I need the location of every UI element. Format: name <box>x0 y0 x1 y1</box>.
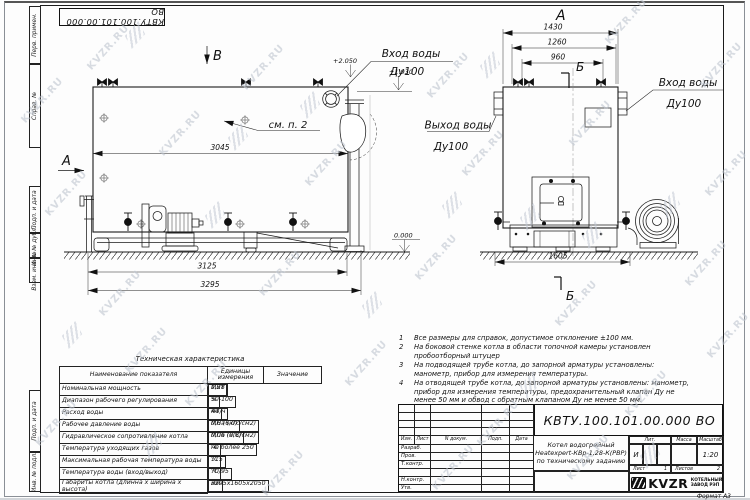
ground-hatch-side <box>64 253 410 260</box>
outlet-label-line2: Ду100 <box>433 141 469 153</box>
note-number: 4 <box>399 379 414 404</box>
inlet-port <box>323 91 340 108</box>
kvzr-logo-icon <box>631 477 646 489</box>
note-text: На подводящей трубе котла, до запорной а… <box>414 361 693 378</box>
col-data: Дата <box>510 436 534 445</box>
table-row: Габариты котла (длинна х ширина х высота… <box>60 480 322 494</box>
side-view: В см. п. 2 3045 Вход воды Ду100 +2.050 +… <box>58 46 453 295</box>
col-docnum: N докум. <box>431 436 482 445</box>
drawing-sheet: Перв. примен. Справ. № Подп. и дата Инв.… <box>0 0 750 500</box>
note-text: Все размеры для справок, допустимое откл… <box>414 334 693 342</box>
row-name: Температура уходящих газов <box>60 444 208 456</box>
elevation-1930: +1.930 <box>389 68 413 76</box>
row-tkontr: Т.контр. <box>399 461 431 469</box>
col-list: Лист <box>415 436 431 445</box>
row-utv: Утв. <box>399 485 431 493</box>
blower-fan <box>636 200 679 249</box>
company-cell: KVZR КОТЕЛЬНЫЙ ЗАВОД РЭП <box>629 473 724 493</box>
row-value: 115 <box>208 456 226 468</box>
inlet-label-front-line1: Вход воды <box>659 77 718 89</box>
table-row: Гидравлическое сопротивление котлаМПа (к… <box>60 432 322 444</box>
dim-1260: 1260 <box>547 38 566 47</box>
format-label: Формат А3 <box>655 493 731 500</box>
title-block-right: Лит. Масса Масштаб И 1:20 Лист 1 Листов … <box>629 436 724 493</box>
see-note-label: см. п. 2 <box>269 120 308 131</box>
product-title: Котел водогрейный Heatexpert-КВр-1,28-К(… <box>534 436 629 471</box>
row-value: 1,28 <box>208 384 228 396</box>
lit-value: И <box>629 444 643 465</box>
dim-1430: 1430 <box>543 23 562 32</box>
lit-header: Лит. <box>629 436 671 444</box>
note-number: 1 <box>399 334 414 342</box>
revision-grid <box>399 405 534 436</box>
inlet-label-line1: Вход воды <box>382 48 441 60</box>
elevation-1930-mark <box>357 77 412 92</box>
company-name: КОТЕЛЬНЫЙ ЗАВОД РЭП <box>691 478 723 489</box>
furnace-door <box>532 177 589 227</box>
table-row: Температура уходящих газов°Сне более 250 <box>60 444 322 456</box>
row-empty <box>399 469 431 477</box>
right-drain-valve <box>622 212 630 230</box>
row-razrab: Разраб. <box>399 445 431 453</box>
row-name: Температура воды (вход/выход) <box>60 468 208 480</box>
kvzr-logo-text: KVZR <box>648 476 688 491</box>
elevation-zero-mark <box>392 240 420 252</box>
table-row: Температура воды (вход/выход)°С70/95 <box>60 468 322 480</box>
tech-header-value: Значение <box>264 367 322 384</box>
elevation-2050-mark <box>346 65 356 78</box>
elevation-zero: 0.000 <box>394 232 413 240</box>
row-value: 50-100 <box>208 396 236 408</box>
sheets-value: 2 <box>717 466 720 472</box>
flue-duct <box>340 100 377 252</box>
see-note-leader <box>224 121 258 131</box>
lit-cell-2 <box>643 444 657 465</box>
drain-valves <box>124 213 297 231</box>
note-number: 3 <box>399 361 414 378</box>
lit-cell-3 <box>657 444 671 465</box>
air-valves-top-front <box>514 79 606 87</box>
dim-1605: 1605 <box>548 252 567 261</box>
product-title-line3: по техническому заданию <box>537 457 626 465</box>
spare-cell <box>534 471 629 493</box>
note-item: 2На боковой стенке котла в области топоч… <box>399 343 693 360</box>
sheet-value: 1 <box>664 466 667 472</box>
note-text: На отводящей трубе котла, до запорной ар… <box>414 379 693 404</box>
notes: 1Все размеры для справок, допустимое отк… <box>399 334 693 406</box>
boiler-body-side <box>93 87 348 232</box>
row-name: Номинальная мощность <box>60 384 208 396</box>
col-izm: Изм. <box>399 436 415 445</box>
front-view: А 1430 1260 960 Б <box>425 8 723 303</box>
dim-960: 960 <box>551 53 566 62</box>
row-prov: Пров. <box>399 453 431 461</box>
elevation-2050: +2.050 <box>333 57 357 65</box>
tech-table-title: Техническая характеристика <box>59 355 321 366</box>
row-name: Рабочее давление воды <box>60 420 208 432</box>
inlet-label-front-line2: Ду100 <box>666 98 702 110</box>
signature-table: Изм. Лист N докум. Подп. Дата Разраб. Пр… <box>399 436 534 493</box>
tech-table-header-row: Наименование показателя Единицы измерени… <box>60 367 322 384</box>
sheet-cell: Лист 1 <box>629 465 671 473</box>
ground-hatch-front <box>480 253 698 260</box>
section-b-bottom-mark <box>554 277 561 290</box>
kvzr-logo: KVZR КОТЕЛЬНЫЙ ЗАВОД РЭП <box>630 474 723 492</box>
table-row: Рабочее давление водыМПа (кгс/см2)0,6 (6… <box>60 420 322 432</box>
section-b-top-label: Б <box>576 60 584 74</box>
row-value: 0,06 (0,6) <box>208 432 244 444</box>
section-b-top-mark <box>561 73 569 88</box>
scale-value: 1:20 <box>697 444 724 465</box>
row-value: 44 <box>208 408 222 420</box>
sheets-cell: Листов 2 <box>671 465 724 473</box>
view-b-label: В <box>213 49 222 64</box>
row-value: 70/95 <box>208 468 232 480</box>
document-number: КВТУ.100.101.00.000 ВО <box>534 405 724 436</box>
row-name: Габариты котла (длинна х ширина х высота… <box>60 480 208 494</box>
table-row: Максимальная рабочая температура воды°С1… <box>60 456 322 468</box>
outlet-flange <box>494 92 503 115</box>
inlet-flange <box>618 92 627 115</box>
air-valves-top <box>98 79 323 87</box>
dim-3125: 3125 <box>197 262 216 271</box>
row-name: Расход воды <box>60 408 208 420</box>
support-frame <box>94 232 347 252</box>
mass-header: Масса <box>671 436 697 444</box>
fan-pipe-elbow <box>628 228 637 245</box>
row-name: Гидравлическое сопротивление котла <box>60 432 208 444</box>
section-a-label: А <box>61 154 71 169</box>
dim-3295: 3295 <box>200 280 219 289</box>
outlet-label-line1: Выход воды <box>425 120 492 132</box>
table-row: Номинальная мощностьМВт1,28 <box>60 384 322 396</box>
company-name-line2: ЗАВОД РЭП <box>691 483 720 488</box>
title-block: КВТУ.100.101.00.000 ВО Изм. Лист N докум… <box>398 404 723 492</box>
tech-table: Наименование показателя Единицы измерени… <box>59 366 322 494</box>
note-number: 2 <box>399 343 414 360</box>
product-title-line2: Heatexpert-КВр-1,28-К(РВР) <box>535 449 627 457</box>
dim-3045: 3045 <box>210 143 229 152</box>
burner-unit <box>142 204 203 251</box>
scale-header: Масштаб <box>697 436 724 444</box>
tech-header-name: Наименование показателя <box>60 367 208 384</box>
note-item: 3На подводящей трубе котла, до запорной … <box>399 361 693 378</box>
col-podp: Подп. <box>482 436 510 445</box>
note-text: На боковой стенке котла в области топочн… <box>414 343 693 360</box>
row-value: не более 250 <box>208 444 257 456</box>
row-value: 3295х1605х2050 <box>208 480 269 492</box>
note-item: 4На отводящей трубе котла, до запорной а… <box>399 379 693 404</box>
technical-characteristics: Техническая характеристика Наименование … <box>59 355 321 494</box>
company-name-line1: КОТЕЛЬНЫЙ <box>691 478 723 483</box>
section-b-bottom-label: Б <box>566 289 574 303</box>
table-row: Диапазон рабочего регулирования%50-100 <box>60 396 322 408</box>
sheet-label: Лист <box>633 466 645 472</box>
table-row: Расход водым3/ч44 <box>60 408 322 420</box>
row-name: Максимальная рабочая температура воды <box>60 456 208 468</box>
row-value: 0,6 (6,0) <box>208 420 240 432</box>
left-downpipe <box>80 196 94 252</box>
note-item: 1Все размеры для справок, допустимое отк… <box>399 334 693 342</box>
sheets-label: Листов <box>675 466 693 472</box>
base-frame <box>510 225 617 251</box>
control-box <box>585 108 611 127</box>
mass-value <box>671 444 697 465</box>
product-title-line1: Котел водогрейный <box>547 441 614 449</box>
left-drain-valve <box>494 212 502 230</box>
row-nkontr: Н.контр. <box>399 477 431 485</box>
row-name: Диапазон рабочего регулирования <box>60 396 208 408</box>
tech-header-units: Единицы измерения <box>208 367 264 384</box>
